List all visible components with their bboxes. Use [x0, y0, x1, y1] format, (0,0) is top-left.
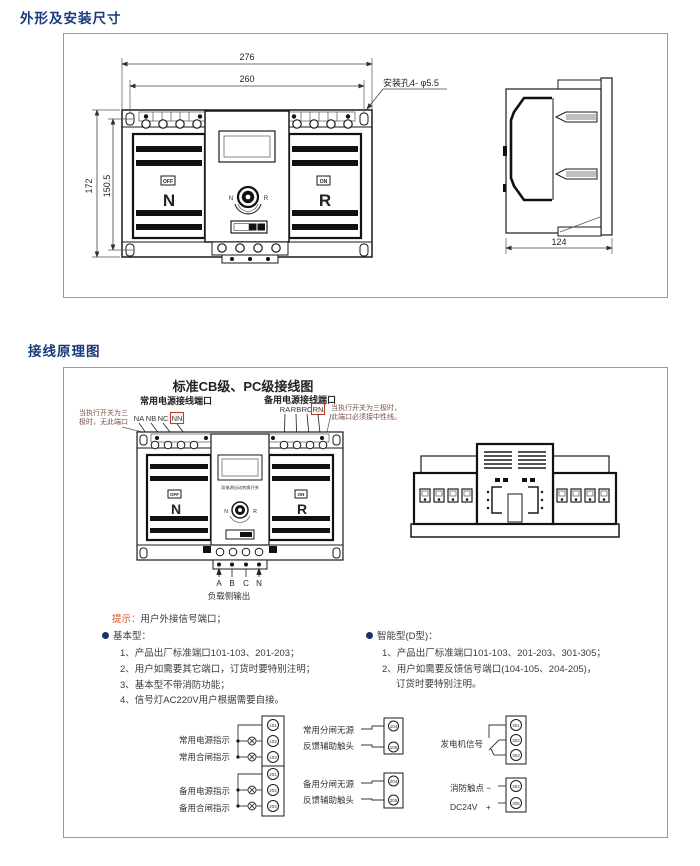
- load-output-label: 负载侧输出: [208, 591, 251, 601]
- normal-port-title: 常用电源接线端口: [140, 395, 212, 406]
- signal-group-normal-feedback: 常用分闸无源 反馈辅助触头 104 105: [303, 718, 403, 754]
- svg-text:304: 304: [512, 784, 520, 789]
- controller-panel: N R: [205, 111, 289, 242]
- bullet-icon: [366, 632, 373, 639]
- svg-text:NN: NN: [172, 414, 183, 423]
- front-view: OFF N ON R N R: [84, 52, 447, 263]
- svg-text:极时，无此端口: 极时，无此端口: [79, 417, 128, 426]
- basic-item-3: 3、基本型不带消防功能；: [120, 677, 230, 691]
- svg-text:260: 260: [239, 74, 254, 84]
- svg-text:常用分闸无源: 常用分闸无源: [303, 725, 355, 735]
- svg-text:C: C: [243, 579, 249, 588]
- knob-r-label: R: [264, 196, 269, 202]
- basic-item-4: 4、信号灯AC220V用户根据需要自接。: [120, 692, 284, 706]
- wiring-normal-block: OFF N: [147, 455, 211, 540]
- svg-text:150.5: 150.5: [102, 175, 112, 198]
- signal-group-fire-dc24v: 消防触点 − DC24V + 304 305: [450, 778, 526, 812]
- bullet-icon: [102, 632, 109, 639]
- svg-text:201: 201: [269, 772, 277, 777]
- normal-terminal-tags: NA NB NC NN: [134, 413, 184, 424]
- signal-group-generator: 发电机信号 301 302 303: [440, 716, 526, 764]
- svg-text:A: A: [216, 579, 222, 588]
- svg-text:RN: RN: [313, 405, 324, 414]
- tip-label: 提示：: [112, 614, 141, 625]
- svg-text:101: 101: [269, 723, 277, 728]
- svg-text:安装孔4- φ5.5: 安装孔4- φ5.5: [383, 77, 439, 88]
- side-view: 124: [503, 78, 612, 254]
- svg-text:R: R: [253, 509, 257, 515]
- svg-text:104: 104: [390, 724, 398, 729]
- dim-depth: 124: [506, 237, 612, 254]
- svg-text:当执行开关为三极时，: 当执行开关为三极时，: [331, 403, 401, 412]
- svg-text:204: 204: [390, 779, 398, 784]
- svg-text:172: 172: [84, 178, 94, 193]
- reserve-port-title: 备用电源接线端口: [263, 394, 336, 405]
- svg-text:反馈辅助触头: 反馈辅助触头: [303, 741, 355, 751]
- signal-group-reserve-feedback: 备用分闸无源 反馈辅助触头 204 205: [303, 773, 403, 808]
- section-title-wiring: 接线原理图: [28, 340, 101, 360]
- reserve-breaker-block: ON R: [289, 134, 361, 238]
- signal-group-normal-indicators: 常用电源指示 常用合闸指示 101 102 103: [179, 716, 284, 768]
- svg-text:103: 103: [269, 755, 277, 760]
- reserve-side-label: R: [319, 191, 331, 210]
- svg-text:备用分闸无源: 备用分闸无源: [303, 779, 355, 789]
- svg-text:102: 102: [269, 739, 277, 744]
- svg-text:105: 105: [390, 745, 398, 750]
- svg-text:NA: NA: [134, 414, 144, 423]
- bottom-terminal-block: [212, 242, 288, 263]
- svg-text:B: B: [229, 579, 234, 588]
- wiring-reserve-block: ON R: [269, 455, 333, 540]
- wiring-controller-panel: 双电源自动转换开关 N R: [211, 434, 269, 545]
- terminal-lug-upper: [556, 112, 597, 122]
- terminal-lug-lower: [556, 169, 597, 179]
- lamp-icon: [248, 737, 256, 745]
- svg-text:RA: RA: [280, 405, 290, 414]
- wiring-drawing: 标准CB级、PC级接线图 常用电源接线端口 备用电源接线端口 NA NB NC …: [63, 367, 668, 838]
- svg-text:N: N: [224, 509, 228, 515]
- svg-text:备用合闸指示: 备用合闸指示: [179, 803, 230, 813]
- lamp-icon: [248, 786, 256, 794]
- smart-item-2-cont: 订货时要特别注明。: [396, 676, 482, 690]
- svg-text:205: 205: [390, 798, 398, 803]
- device-center-text: 双电源自动转换开关: [221, 484, 259, 491]
- basic-item-2: 2、用户如需要其它端口，订货时要特别注明；: [120, 661, 315, 675]
- mode-slider: [231, 221, 267, 233]
- basic-type-heading: 基本型：: [102, 628, 151, 642]
- smart-item-1: 1、产品出厂标准端口101-103、201-203、301-305；: [382, 645, 606, 659]
- wiring-diagram-title: 标准CB级、PC级接线图: [172, 379, 314, 394]
- outline-drawing: OFF N ON R N R: [63, 33, 668, 298]
- svg-text:备用电源指示: 备用电源指示: [179, 786, 230, 796]
- smart-type-heading: 智能型(D型)：: [366, 628, 438, 642]
- svg-text:常用合闸指示: 常用合闸指示: [179, 752, 230, 762]
- rotary-knob: [238, 187, 258, 207]
- off-badge: OFF: [163, 179, 173, 185]
- basic-item-1: 1、产品出厂标准端口101-103、201-203；: [120, 645, 300, 659]
- normal-breaker-block: OFF N: [133, 134, 205, 238]
- load-output-leads: A B C N 负载侧输出: [208, 569, 262, 601]
- svg-text:ON: ON: [298, 492, 305, 497]
- svg-text:302: 302: [512, 738, 520, 743]
- tip-text: 用户外接信号端口；: [141, 614, 227, 625]
- svg-text:303: 303: [512, 753, 520, 758]
- wiring-top-view: [411, 444, 619, 537]
- svg-text:305: 305: [512, 801, 520, 806]
- svg-text:反馈辅助触头: 反馈辅助触头: [303, 795, 355, 805]
- normal-side-label: N: [163, 191, 175, 210]
- svg-text:276: 276: [239, 52, 254, 62]
- svg-text:常用电源指示: 常用电源指示: [179, 735, 230, 745]
- svg-text:R: R: [297, 501, 307, 517]
- lamp-icon: [248, 802, 256, 810]
- svg-text:124: 124: [551, 237, 566, 247]
- on-badge: ON: [320, 179, 328, 185]
- svg-text:202: 202: [269, 788, 277, 793]
- section-title-outline: 外形及安装尺寸: [20, 7, 122, 27]
- svg-text:RB: RB: [291, 405, 301, 414]
- svg-text:消防触点 −: 消防触点 −: [450, 783, 491, 793]
- dim-width-inner: 260: [130, 74, 364, 113]
- svg-text:发电机信号: 发电机信号: [440, 739, 483, 749]
- lamp-icon: [248, 753, 256, 761]
- signal-group-reserve-indicators: 备用电源指示 备用合闸指示 201 202 203: [179, 766, 284, 816]
- svg-text:OFF: OFF: [170, 492, 179, 497]
- svg-text:此端口必须接中性线。: 此端口必须接中性线。: [331, 412, 401, 421]
- svg-text:N: N: [256, 579, 262, 588]
- svg-text:301: 301: [512, 723, 520, 728]
- basic-type-title: 基本型：: [113, 631, 151, 642]
- smart-type-title: 智能型(D型)：: [377, 631, 438, 642]
- svg-text:DC24V +: DC24V +: [450, 802, 491, 812]
- wiring-front-view: OFF N ON R 双电源自动转换开关 N R: [137, 432, 343, 601]
- smart-item-2: 2、用户如需要反馈信号端口(104-105、204-205)，: [382, 661, 596, 675]
- knob-n-label: N: [229, 196, 233, 202]
- svg-text:NC: NC: [158, 414, 169, 423]
- mounting-hole-callout: 安装孔4- φ5.5: [367, 77, 447, 109]
- svg-text:N: N: [171, 501, 181, 517]
- svg-text:203: 203: [269, 804, 277, 809]
- reserve-terminal-tags: RA RB RC RN: [280, 404, 325, 415]
- svg-text:当执行开关为三: 当执行开关为三: [79, 408, 128, 417]
- catalog-page: { "sections": { "outline_title": "外形及安装尺…: [0, 0, 700, 866]
- tip-line: 提示：用户外接信号端口；: [112, 611, 226, 625]
- svg-text:NB: NB: [146, 414, 156, 423]
